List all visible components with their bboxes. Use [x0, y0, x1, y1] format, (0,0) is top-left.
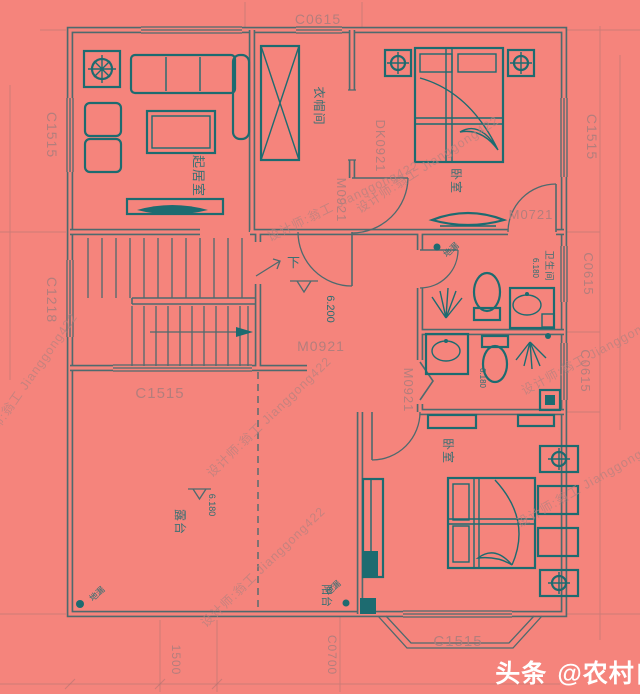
room-label: 卫生间 [543, 250, 555, 282]
floor-drain-dot [545, 333, 551, 339]
room-label: 卧室 [441, 438, 456, 464]
column [360, 598, 376, 614]
window-tag: C0615 [581, 252, 596, 295]
floor-plan-screenshot: C0615 C1515 C1218 C1515 C0615 C0615 C151… [0, 0, 640, 694]
window-tag: C1218 [44, 277, 60, 323]
room-label: 卧室 [449, 168, 464, 194]
elevation-label: 6.200 [324, 295, 336, 323]
window-tag: C0700 [325, 635, 339, 675]
door-tag: DK0921 [373, 120, 388, 173]
room-label: 衣帽间 [312, 86, 327, 125]
footer-credit: 头条@农村自建房图纸 [495, 659, 640, 688]
room-label: 起居室 [191, 155, 206, 197]
window-tag: C1515 [433, 633, 482, 650]
elevation-label: 6.180 [478, 368, 487, 389]
elevation-label: 6.180 [207, 494, 217, 517]
room-label: 露台 [173, 509, 188, 535]
footer-badge: 头条 [495, 660, 547, 688]
dimension-label: 1500 [169, 645, 183, 676]
floor-drain-dot [434, 244, 441, 251]
stairs-down-label: 下 [287, 255, 301, 270]
window-tag: C0615 [295, 11, 341, 27]
footer-handle: @农村自建房图纸 [557, 659, 640, 688]
floor-drain-dot [76, 600, 84, 608]
window-tag: C1515 [135, 385, 184, 402]
door-tag: M0721 [509, 207, 554, 222]
door-tag: M0921 [401, 368, 416, 413]
floor-drain-dot [343, 600, 350, 607]
window-tag: C1515 [584, 114, 600, 160]
window-tag: C1515 [44, 112, 60, 158]
floor-plan-drawing: C0615 C1515 C1218 C1515 C0615 C0615 C151… [0, 0, 640, 694]
door-tag: M0921 [297, 338, 345, 354]
elevation-label: 6.180 [531, 258, 540, 279]
